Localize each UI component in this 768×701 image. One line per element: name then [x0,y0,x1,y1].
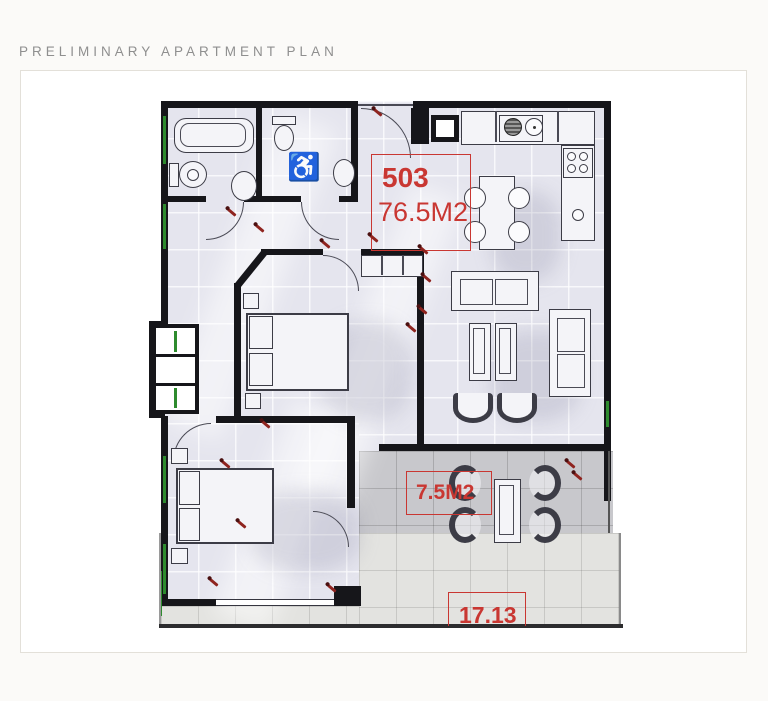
window [216,599,334,606]
pillow [249,316,273,349]
nightstand [243,293,259,309]
window-mark [163,544,166,594]
window-mark [163,204,166,249]
wall [161,196,206,202]
terrace-boundary-line [159,624,623,628]
sofa-side [549,309,591,397]
balcony-railing [608,451,610,533]
wardrobe [152,324,199,414]
sink-basin [525,118,543,136]
window-mark [163,116,166,164]
unit-number: 503 [382,164,429,193]
wall [161,599,216,606]
wall [604,101,611,501]
terrace-edge [619,533,621,627]
floor-plan: ♿ [21,71,746,652]
dining-chair [508,221,530,243]
wall [339,196,358,202]
wall [234,283,241,418]
plan-card: ♿ [20,70,747,653]
wall [347,416,355,508]
unit-area: 76.5M2 [378,199,468,227]
entry-closet [361,255,423,277]
armchair [497,393,537,423]
wall [413,101,611,108]
balcony-chair [529,465,561,501]
pillow [249,353,273,386]
window-mark [163,456,166,503]
wall [379,444,611,451]
pillow [179,471,200,505]
terrace-length: 17.13 [459,604,517,627]
toilet [274,125,294,151]
sofa [451,271,539,311]
toilet-tank [169,163,179,187]
wall [417,249,424,444]
nightstand [245,393,261,409]
armchair [453,393,493,423]
sink-basin [572,209,584,221]
toilet-tank [272,116,296,125]
wall [351,101,358,202]
nightstand [171,548,188,564]
shaft [411,108,429,144]
balcony-label-box: 7.5M2 [406,471,492,515]
wall [261,249,323,255]
coffee-table [469,323,491,381]
window-mark [606,401,609,427]
wall [216,416,351,423]
sink-basin [504,118,522,136]
fridge [431,115,459,142]
dining-chair [508,187,530,209]
unit-label-box: 503 76.5M2 [371,154,471,251]
balcony-area: 7.5M2 [416,482,474,503]
balcony-table [494,479,521,543]
stove [563,148,593,178]
nightstand [171,448,188,464]
terrace-edge [159,533,161,627]
terrace-label-box: 17.13 [448,592,526,626]
coffee-table [495,323,517,381]
balcony-chair [529,507,561,543]
wheelchair-icon: ♿ [287,151,321,185]
wall [256,101,262,196]
pillow [179,508,200,541]
wall [334,599,361,606]
sink [231,171,257,201]
sink [333,159,355,187]
bathtub [174,118,254,153]
page-title: PRELIMINARY APARTMENT PLAN [19,44,338,59]
toilet [179,161,207,188]
entrance-threshold [356,104,413,106]
